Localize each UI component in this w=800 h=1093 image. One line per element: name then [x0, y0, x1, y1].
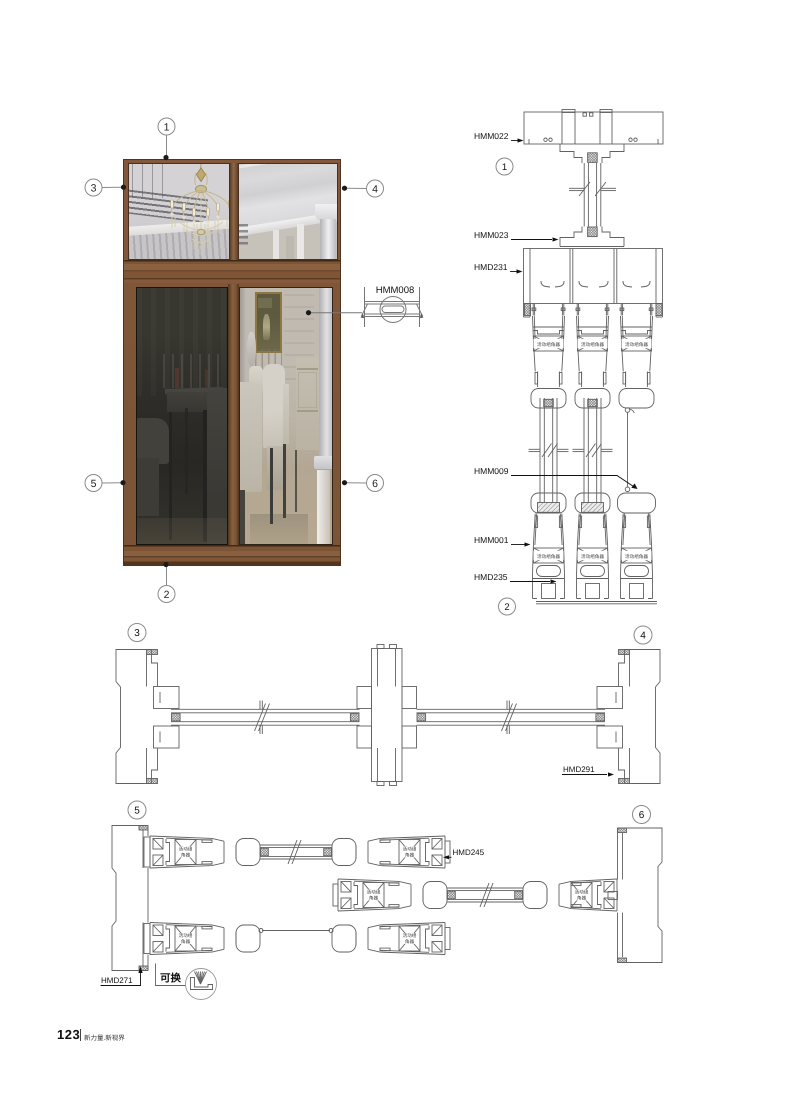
svg-text:HMM001: HMM001 [474, 535, 509, 545]
svg-text:活动组: 活动组 [367, 890, 381, 895]
svg-text:角器: 角器 [405, 852, 415, 857]
svg-text:HMM023: HMM023 [474, 230, 509, 240]
svg-text:6: 6 [639, 810, 645, 821]
svg-text:2: 2 [504, 602, 509, 613]
svg-text:1: 1 [502, 162, 507, 173]
svg-text:角器: 角器 [405, 939, 415, 944]
svg-text:3: 3 [134, 628, 140, 639]
svg-text:角器: 角器 [577, 895, 587, 900]
svg-text:HMD231: HMD231 [474, 262, 508, 272]
svg-text:可换: 可换 [160, 972, 181, 985]
svg-text:活动组: 活动组 [403, 847, 417, 852]
svg-text:活动组角器: 活动组角器 [581, 342, 604, 347]
svg-text:活动组: 活动组 [179, 847, 193, 852]
svg-text:活动组: 活动组 [403, 933, 417, 938]
svg-text:HMD245: HMD245 [453, 848, 485, 857]
svg-text:角器: 角器 [369, 895, 379, 900]
svg-text:HMD271: HMD271 [101, 976, 133, 985]
svg-text:活动组角器: 活动组角器 [537, 554, 560, 559]
svg-text:活动组角器: 活动组角器 [581, 554, 604, 559]
svg-text:角器: 角器 [181, 852, 191, 857]
svg-text:活动组角器: 活动组角器 [625, 342, 648, 347]
svg-text:HMD235: HMD235 [474, 572, 508, 582]
svg-text:HMD291: HMD291 [563, 765, 595, 774]
svg-text:活动组: 活动组 [575, 890, 589, 895]
svg-text:活动组角器: 活动组角器 [625, 554, 648, 559]
svg-text:HMM009: HMM009 [474, 466, 509, 476]
svg-text:角器: 角器 [181, 939, 191, 944]
svg-text:4: 4 [640, 631, 646, 642]
svg-text:活动组: 活动组 [179, 933, 193, 938]
svg-text:5: 5 [134, 806, 140, 817]
svg-text:活动组角器: 活动组角器 [537, 342, 560, 347]
svg-text:HMM022: HMM022 [474, 131, 509, 141]
